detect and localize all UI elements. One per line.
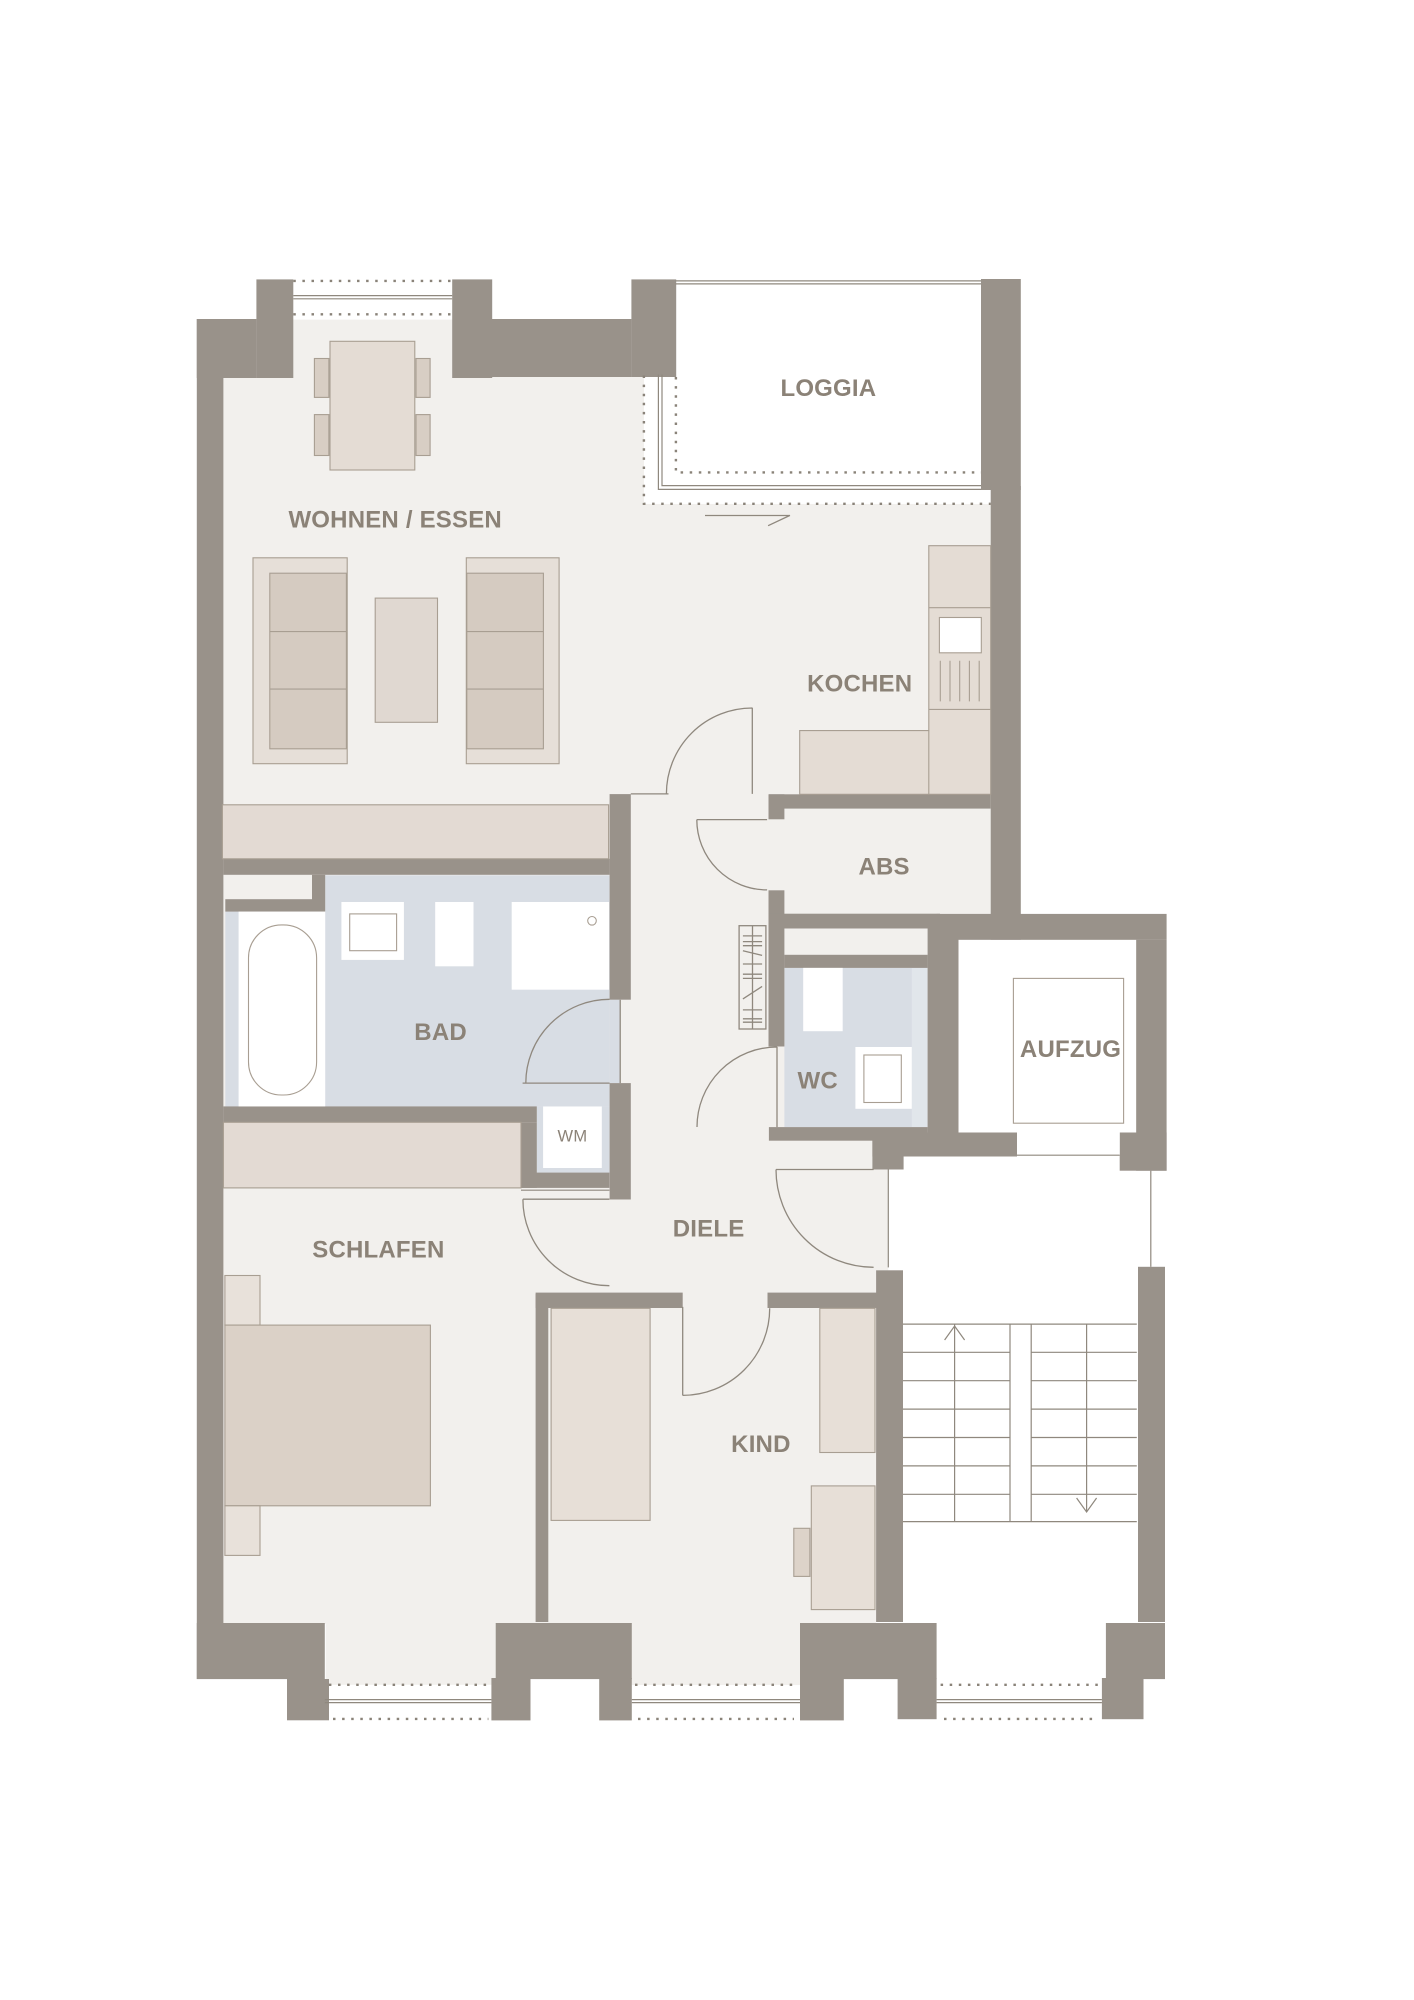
svg-text:BAD: BAD (414, 1019, 467, 1046)
svg-text:KOCHEN: KOCHEN (807, 670, 912, 697)
svg-text:SCHLAFEN: SCHLAFEN (312, 1236, 444, 1263)
svg-text:KIND: KIND (731, 1431, 790, 1458)
svg-text:DIELE: DIELE (673, 1215, 745, 1242)
svg-text:WC: WC (798, 1068, 838, 1095)
svg-text:ABS: ABS (858, 854, 909, 881)
svg-text:LOGGIA: LOGGIA (780, 375, 876, 402)
svg-text:AUFZUG: AUFZUG (1020, 1036, 1121, 1063)
svg-text:WOHNEN / ESSEN: WOHNEN / ESSEN (288, 506, 502, 533)
svg-text:WM: WM (557, 1127, 587, 1145)
